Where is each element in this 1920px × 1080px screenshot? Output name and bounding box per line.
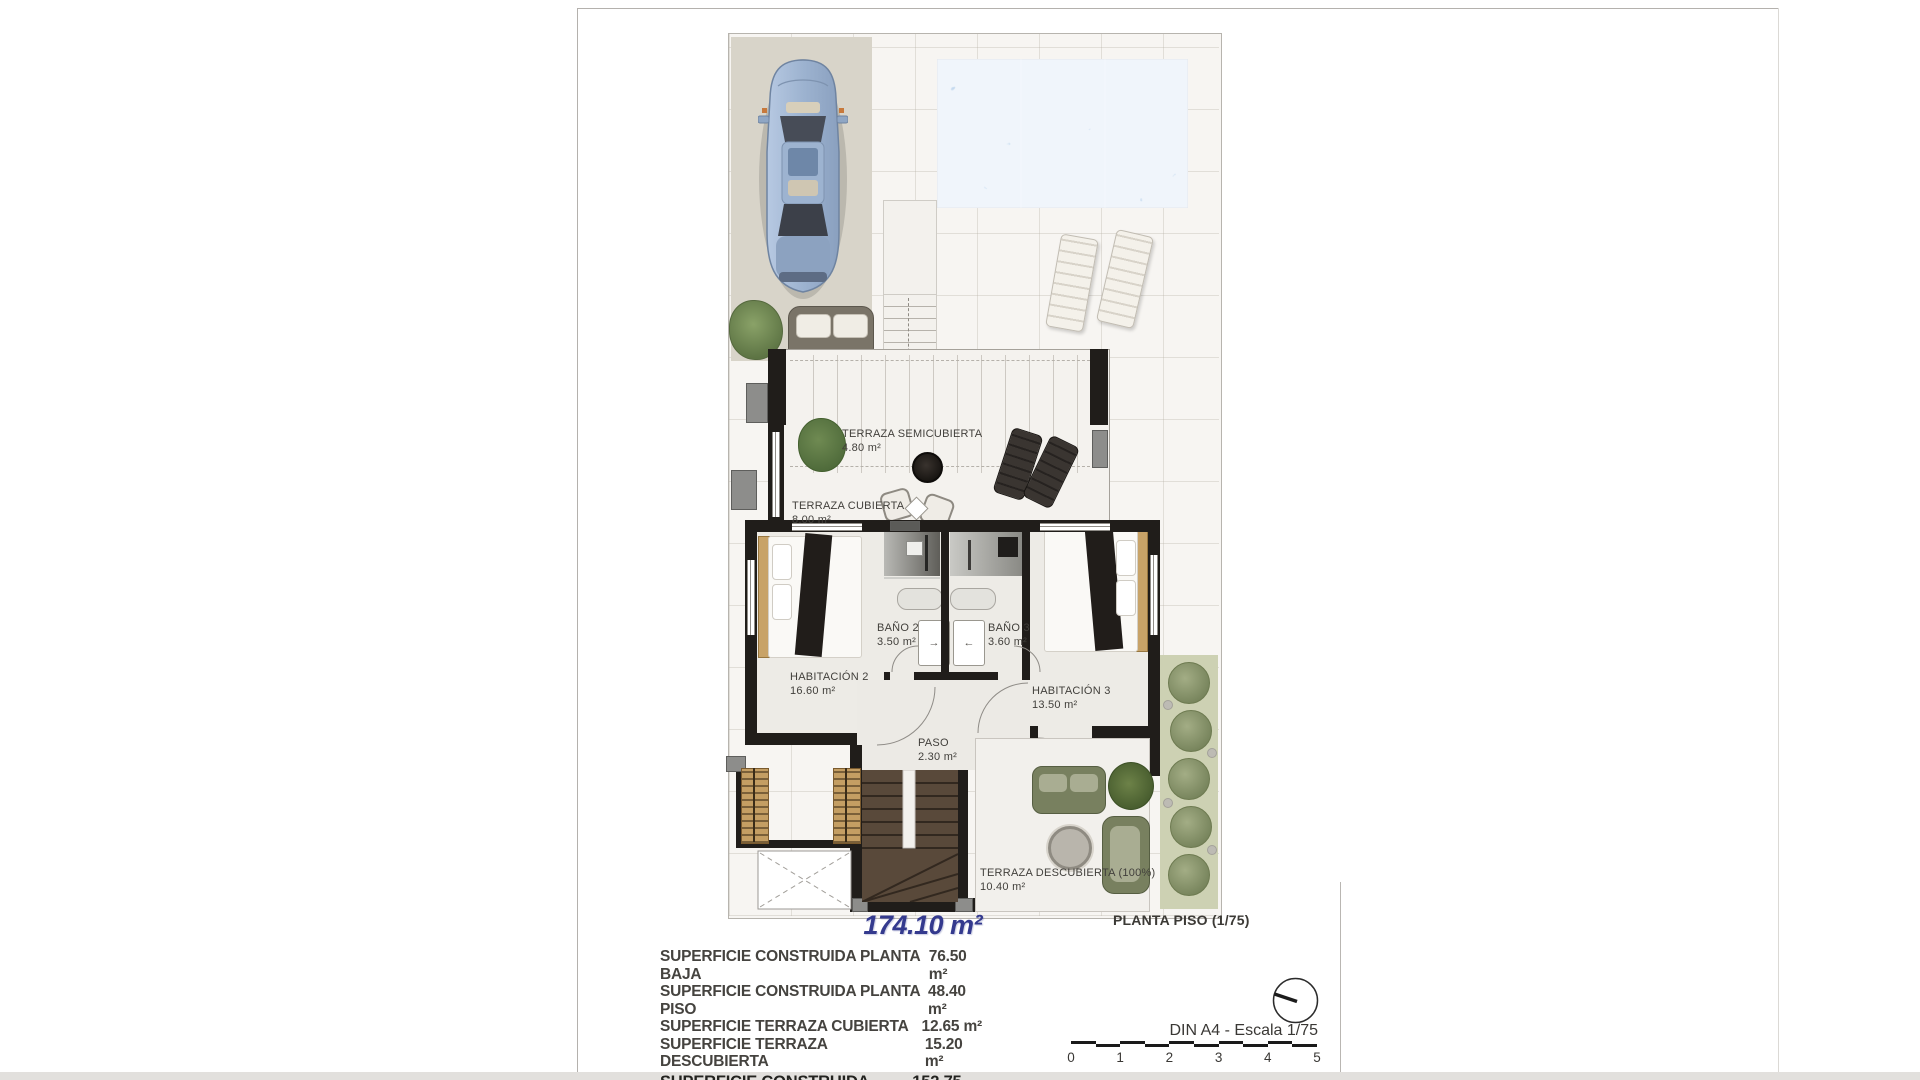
bush [1170, 710, 1212, 752]
scale-bar [1071, 1041, 1317, 1048]
sofa-cushion [1070, 774, 1098, 792]
sheet-right-edge [1778, 8, 1779, 1072]
wardrobe-rod [845, 768, 847, 842]
bush [1168, 854, 1210, 896]
plan-title: PLANTA PISO (1/75) [1113, 912, 1250, 928]
room-name: TERRAZA CUBIERTA [792, 499, 904, 513]
bush [1168, 758, 1210, 800]
scale-segment [1292, 1044, 1317, 1047]
north-compass-icon [1272, 977, 1319, 1024]
room-area: 10.40 m² [980, 880, 1155, 894]
room-area: 13.50 m² [1032, 698, 1111, 712]
surface-label: SUPERFICIE CONSTRUIDA PLANTA BAJA [660, 948, 929, 983]
room-name: BAÑO 3 [988, 621, 1030, 635]
surface-value: 48.40 m² [928, 983, 982, 1018]
wardrobe-rod [753, 768, 755, 842]
scale-tick: 0 [1067, 1050, 1075, 1065]
wardrobe [741, 768, 769, 844]
scale-segment [1194, 1044, 1219, 1047]
room-area: 3.60 m² [988, 635, 1030, 649]
bush [1170, 806, 1212, 848]
room-name: TERRAZA DESCUBIERTA (100%) [980, 866, 1155, 880]
surface-value: 12.65 m² [922, 1018, 982, 1036]
surface-table: SUPERFICIE CONSTRUIDA PLANTA BAJA 76.50 … [660, 948, 982, 1080]
room-label-bano3: BAÑO 3 3.60 m² [988, 621, 1030, 650]
scale-tick: 3 [1215, 1050, 1223, 1065]
scale-segment [1169, 1041, 1194, 1044]
room-name: HABITACIÓN 2 [790, 670, 869, 684]
room-label-terraza-semicubierta: TERRAZA SEMICUBIERTA 4.80 m² [842, 427, 982, 456]
room-label-habitacion3: HABITACIÓN 3 13.50 m² [1032, 684, 1111, 713]
headline-area: 174.10 m² [660, 910, 982, 941]
scale-ticks: 0 1 2 3 4 5 [1071, 1050, 1317, 1068]
sofa-cushion [1039, 774, 1067, 792]
scale-tick: 5 [1313, 1050, 1321, 1065]
surface-label: SUPERFICIE TERRAZA CUBIERTA [660, 1018, 909, 1036]
staircase [862, 770, 958, 902]
scale-tick: 4 [1264, 1050, 1272, 1065]
scale-segment [1243, 1044, 1268, 1047]
surface-value: 76.50 m² [929, 948, 982, 983]
room-label-terraza-cubierta: TERRAZA CUBIERTA 8.00 m² [792, 499, 904, 528]
scale-segment [1219, 1041, 1244, 1044]
floorplan-screenshot: → ← [0, 0, 1920, 1080]
room-name: HABITACIÓN 3 [1032, 684, 1111, 698]
room-name: BAÑO 2 [877, 621, 919, 635]
pebble [1207, 748, 1217, 758]
room-area: 2.30 m² [918, 750, 957, 764]
wardrobe [833, 768, 861, 844]
scale-tick: 1 [1116, 1050, 1124, 1065]
surface-value: 15.20 m² [925, 1036, 982, 1071]
surface-label: SUPERFICIE CONSTRUIDA TOTAL [660, 1074, 912, 1080]
scale-tick: 2 [1166, 1050, 1174, 1065]
pebble [1163, 700, 1173, 710]
room-name: TERRAZA SEMICUBIERTA [842, 427, 982, 441]
bush [1168, 662, 1210, 704]
round-coffee-table [1048, 826, 1092, 870]
room-area: 16.60 m² [790, 684, 869, 698]
pebble [1207, 845, 1217, 855]
room-label-habitacion2: HABITACIÓN 2 16.60 m² [790, 670, 869, 699]
scale-segment [1120, 1041, 1145, 1044]
scale-caption: DIN A4 - Escala 1/75 [1100, 1022, 1318, 1040]
scale-segment [1145, 1044, 1170, 1047]
room-label-paso: PASO 2.30 m² [918, 736, 957, 765]
surface-row: SUPERFICIE TERRAZA DESCUBIERTA 15.20 m² [660, 1036, 982, 1071]
room-name: PASO [918, 736, 957, 750]
room-label-terraza-descubierta: TERRAZA DESCUBIERTA (100%) 10.40 m² [980, 866, 1155, 895]
storage-box [757, 850, 852, 910]
surface-label: SUPERFICIE TERRAZA DESCUBIERTA [660, 1036, 925, 1071]
room-area: 4.80 m² [842, 441, 982, 455]
room-label-bano2: BAÑO 2 3.50 m² [877, 621, 919, 650]
summary-frame-edge [1340, 882, 1341, 1072]
surface-value: 152.75 m² [912, 1074, 982, 1080]
pebble [1163, 798, 1173, 808]
scale-segment [1071, 1041, 1096, 1044]
room-area: 8.00 m² [792, 513, 904, 527]
room-area: 3.50 m² [877, 635, 919, 649]
scale-segment [1096, 1044, 1121, 1047]
grass-plant [1108, 762, 1154, 810]
surface-row-total: SUPERFICIE CONSTRUIDA TOTAL 152.75 m² [660, 1074, 982, 1080]
surface-row: SUPERFICIE CONSTRUIDA PLANTA PISO 48.40 … [660, 983, 982, 1018]
surface-row: SUPERFICIE CONSTRUIDA PLANTA BAJA 76.50 … [660, 948, 982, 983]
surface-label: SUPERFICIE CONSTRUIDA PLANTA PISO [660, 983, 928, 1018]
surface-row: SUPERFICIE TERRAZA CUBIERTA 12.65 m² [660, 1018, 982, 1036]
scale-segment [1268, 1041, 1293, 1044]
